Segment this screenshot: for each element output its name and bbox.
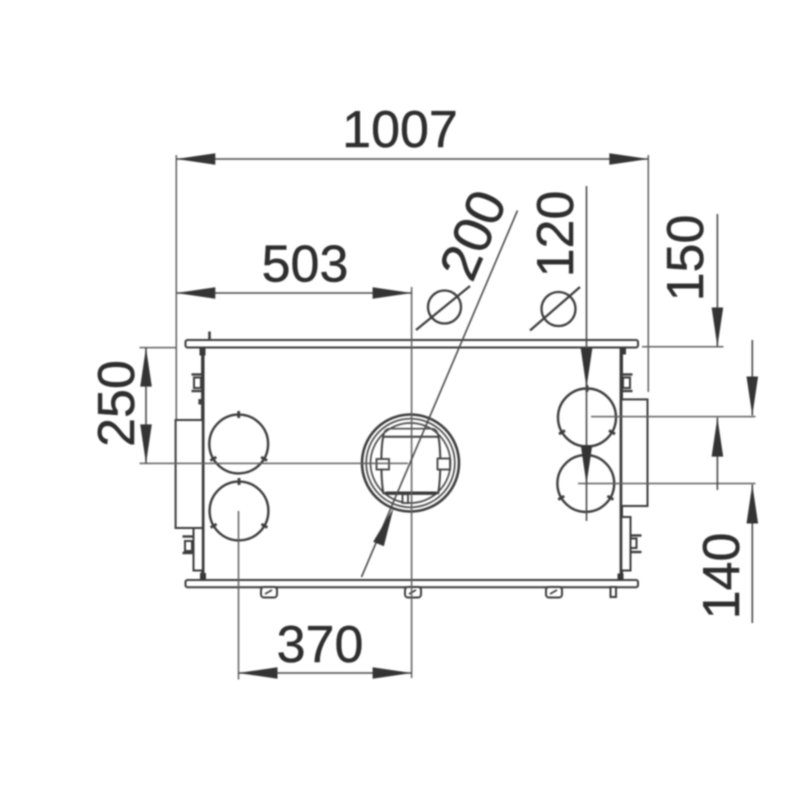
svg-text:200: 200 (428, 182, 518, 288)
svg-text:1007: 1007 (342, 101, 458, 159)
svg-text:140: 140 (693, 533, 751, 620)
svg-text:250: 250 (88, 360, 146, 447)
svg-text:150: 150 (657, 215, 715, 302)
svg-text:120: 120 (527, 191, 585, 278)
svg-text:503: 503 (262, 236, 349, 294)
svg-text:370: 370 (277, 616, 364, 674)
